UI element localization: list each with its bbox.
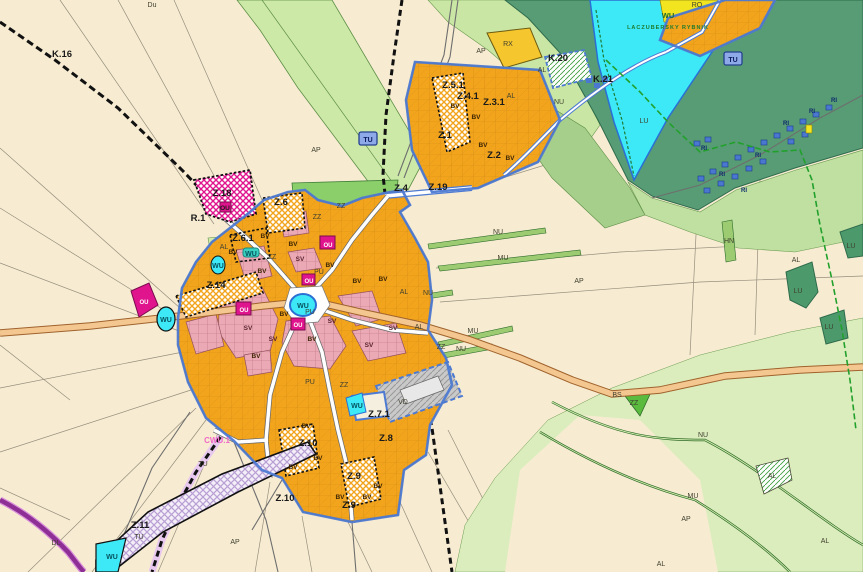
zoning-map: TUTU K.16R.1Z.18Z.6Z.6.1Z.14Z.2Z.4Z.19Z.… [0, 0, 863, 572]
badge-tu: TU [724, 52, 742, 65]
zoning-map-canvas: TUTU K.16R.1Z.18Z.6Z.6.1Z.14Z.2Z.4Z.19Z.… [0, 0, 863, 572]
ri-yellow-parcel [806, 125, 812, 133]
wu-pond-west [157, 307, 175, 331]
wu-pond-northwest [211, 256, 225, 274]
badge-tu: TU [359, 132, 377, 145]
wu-pond-center [290, 294, 316, 316]
wu-strip-small [243, 248, 259, 257]
zone-z9 [341, 457, 381, 507]
